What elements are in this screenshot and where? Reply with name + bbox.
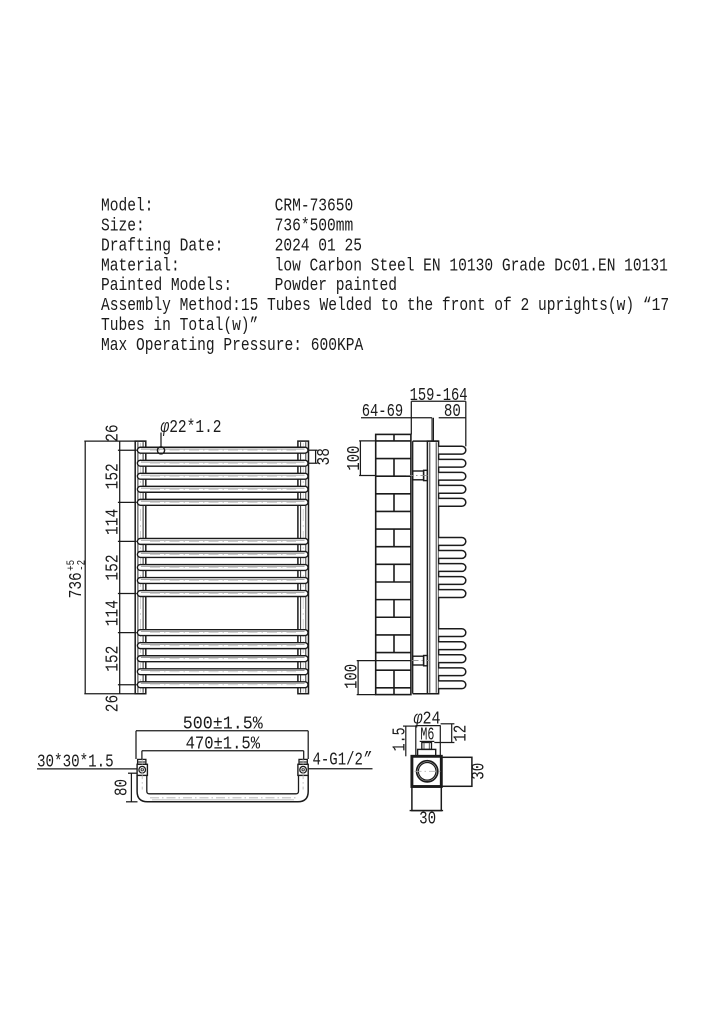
- svg-text:100: 100: [342, 664, 363, 689]
- svg-text:26: 26: [102, 424, 123, 442]
- svg-text:500±1.5%: 500±1.5%: [183, 714, 264, 735]
- svg-text:30: 30: [469, 763, 490, 780]
- svg-text:470±1.5%: 470±1.5%: [186, 733, 261, 754]
- svg-text:low Carbon Steel EN 10130 Grad: low Carbon Steel EN 10130 Grade Dc01.EN …: [275, 255, 668, 276]
- svg-text:Material:: Material:: [101, 255, 180, 276]
- svg-text:Max Operating Pressure: 600KPA: Max Operating Pressure: 600KPA: [101, 335, 364, 356]
- svg-text:1.5: 1.5: [389, 727, 410, 751]
- svg-text:Tubes in Total(w)”: Tubes in Total(w)”: [101, 315, 258, 336]
- svg-text:2024 01 25: 2024 01 25: [275, 235, 362, 256]
- svg-text:114: 114: [102, 600, 123, 626]
- svg-text:152: 152: [102, 463, 123, 489]
- svg-text:4-G1/2”: 4-G1/2”: [313, 749, 372, 770]
- svg-text:Assembly Method:15 Tubes Welde: Assembly Method:15 Tubes Welded to the f…: [101, 295, 669, 316]
- svg-text:38: 38: [314, 448, 335, 466]
- svg-text:Painted Models:: Painted Models:: [101, 275, 232, 296]
- svg-text:12: 12: [450, 725, 471, 742]
- svg-text:736: 736: [66, 572, 87, 598]
- svg-text:80: 80: [444, 401, 461, 422]
- svg-text:152: 152: [102, 554, 123, 580]
- svg-text:Size:: Size:: [101, 216, 145, 237]
- svg-text:Model:: Model:: [101, 196, 153, 217]
- svg-text:CRM-73650: CRM-73650: [275, 196, 354, 217]
- svg-text:Drafting Date:: Drafting Date:: [101, 235, 223, 256]
- svg-text:64-69: 64-69: [362, 401, 404, 422]
- svg-text:114: 114: [102, 509, 123, 535]
- svg-text:-2: -2: [77, 560, 89, 571]
- svg-text:φ24: φ24: [414, 708, 441, 729]
- svg-text:152: 152: [102, 646, 123, 672]
- svg-text:Powder painted: Powder painted: [275, 275, 397, 296]
- svg-text:80: 80: [112, 779, 133, 796]
- svg-text:30: 30: [419, 809, 436, 830]
- svg-text:100: 100: [344, 446, 365, 471]
- svg-text:φ22*1.2: φ22*1.2: [161, 417, 222, 438]
- svg-text:736*500mm: 736*500mm: [275, 216, 354, 237]
- svg-text:26: 26: [102, 695, 123, 713]
